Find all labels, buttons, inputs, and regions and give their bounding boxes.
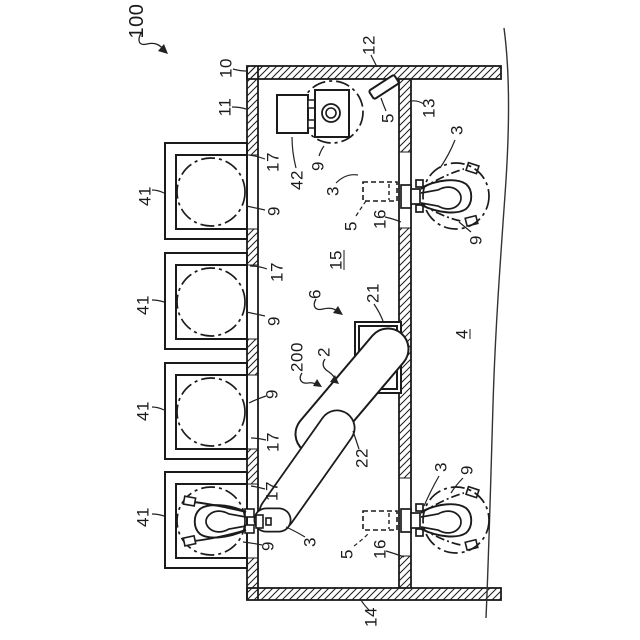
figure-drawing — [0, 0, 640, 640]
patent-figure: 1001011121354293516391562142002221791799… — [0, 0, 640, 640]
robot-arm — [266, 349, 388, 520]
top-wall — [247, 66, 501, 79]
camera-unit — [277, 81, 363, 143]
hand-stand-phantom — [363, 511, 397, 530]
camera-head — [315, 90, 349, 137]
bottom-wall — [247, 588, 501, 600]
break-line — [486, 28, 509, 618]
hand-station-top — [363, 163, 489, 229]
stored-workpiece-outline — [421, 504, 471, 536]
camera-body — [277, 95, 308, 133]
stored-workpiece-outline — [421, 180, 471, 212]
hand-stand-phantom — [363, 182, 397, 201]
hand-station-bottom — [363, 487, 489, 553]
